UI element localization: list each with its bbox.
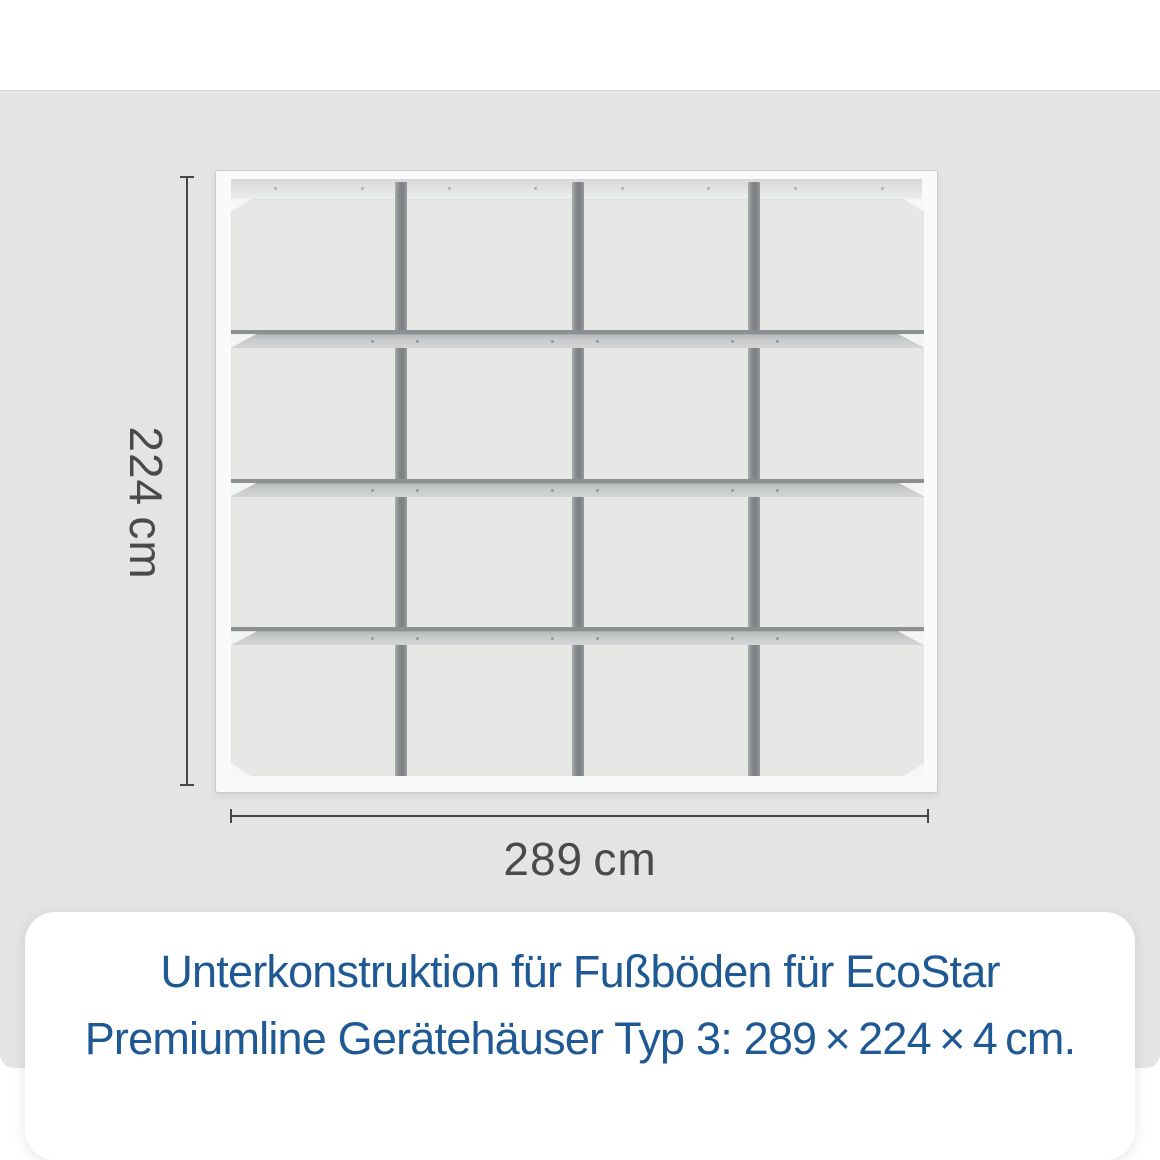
screw-dot (731, 489, 734, 492)
screw-dot (776, 340, 779, 343)
screw-dot (534, 187, 537, 190)
beam-end-gusset (231, 631, 257, 645)
screw-dot (731, 340, 734, 343)
beam-end-gusset (231, 334, 257, 348)
beam-end-gusset (898, 483, 924, 497)
screw-dot (731, 637, 734, 640)
width-dimension-line (230, 815, 929, 817)
caption-line-1: Unterkonstruktion für Fußböden für EcoSt… (25, 938, 1135, 1005)
corner-gusset (904, 199, 924, 212)
horizontal-beam (231, 627, 924, 645)
screw-dot (371, 489, 374, 492)
screw-dot (274, 187, 277, 190)
screw-dot (448, 187, 451, 190)
screw-dot (621, 187, 624, 190)
height-dimension-line (186, 176, 188, 786)
caption-line-2: Premiumline Gerätehäuser Typ 3: 289 × 22… (25, 1005, 1135, 1072)
screw-dot (371, 637, 374, 640)
caption-card: Unterkonstruktion für Fußböden für EcoSt… (25, 912, 1135, 1160)
screw-dot (361, 187, 364, 190)
corner-gusset (904, 763, 924, 776)
screw-dot (551, 489, 554, 492)
frame-grid (231, 199, 924, 776)
screw-dot (416, 489, 419, 492)
screw-dot (551, 340, 554, 343)
screw-dot (416, 637, 419, 640)
floor-frame (215, 170, 938, 793)
screw-dot (416, 340, 419, 343)
screw-dot (776, 637, 779, 640)
screw-dot (596, 489, 599, 492)
screw-dot (707, 187, 710, 190)
beam-end-gusset (231, 483, 257, 497)
beam-end-gusset (898, 631, 924, 645)
screw-dot (551, 637, 554, 640)
screw-dot (881, 187, 884, 190)
screw-dot (371, 340, 374, 343)
product-image: 224 cm 289 cm Unterkonstruktion für Fußb… (0, 0, 1160, 1160)
horizontal-beam (231, 479, 924, 497)
screw-dot (794, 187, 797, 190)
caption-text: Unterkonstruktion für Fußböden für EcoSt… (25, 938, 1135, 1072)
beam-end-gusset (898, 334, 924, 348)
screw-dot (596, 340, 599, 343)
width-dimension-label: 289 cm (503, 832, 656, 886)
height-dimension-label: 224 cm (119, 426, 173, 579)
screw-dot (596, 637, 599, 640)
corner-gusset (231, 199, 251, 212)
corner-gusset (231, 763, 251, 776)
horizontal-beam (231, 330, 924, 348)
screw-dot (776, 489, 779, 492)
